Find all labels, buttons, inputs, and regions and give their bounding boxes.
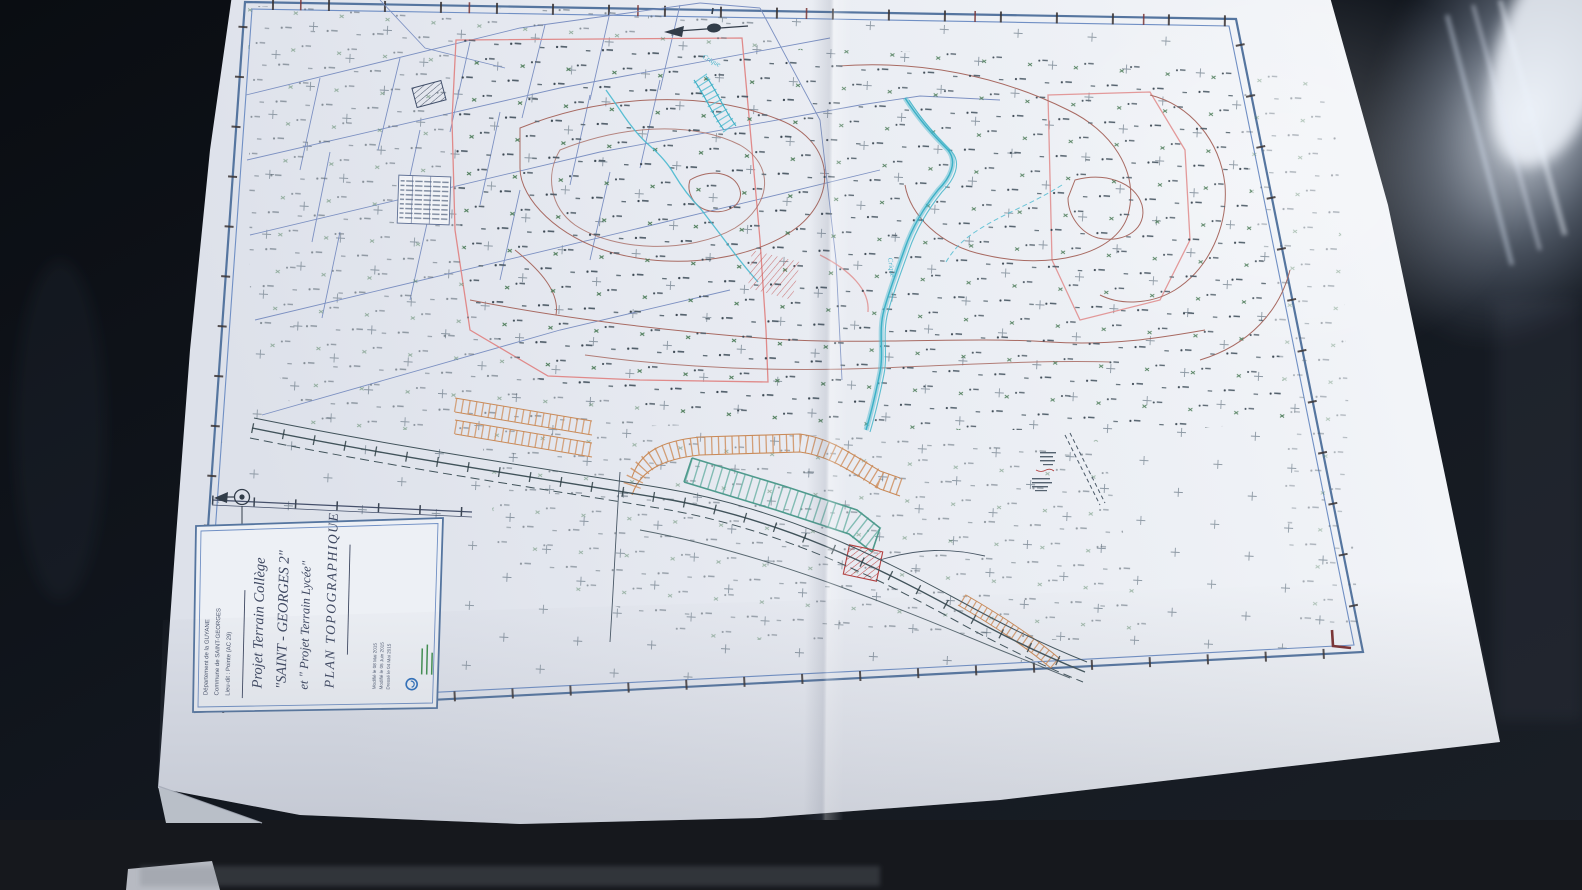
photo-of-topographic-plan: Crique Crique xyxy=(0,0,1582,890)
table-edge-band xyxy=(140,866,880,886)
left-reflection xyxy=(15,260,105,600)
plan-photo-svg: Crique Crique xyxy=(0,0,1582,890)
coordinate-table xyxy=(397,175,451,225)
